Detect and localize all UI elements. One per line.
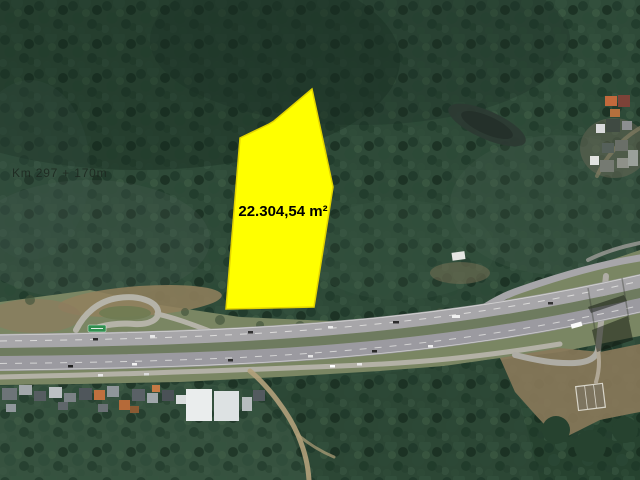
house-roof (130, 406, 139, 413)
building-roof (617, 158, 629, 168)
house-roof (2, 388, 17, 400)
house-roof (49, 387, 62, 398)
km-marker-label: Km 297 + 170m (12, 166, 107, 180)
vehicle (150, 335, 155, 338)
house-roof (34, 391, 46, 401)
house-roof (162, 390, 174, 401)
house-roof (119, 400, 130, 410)
house-roof (6, 404, 16, 412)
vehicle (132, 363, 137, 366)
building-roof (605, 96, 617, 106)
vehicle (548, 302, 553, 305)
vehicle (228, 359, 233, 362)
vehicle (68, 365, 73, 368)
house-roof (64, 393, 76, 402)
building-roof (600, 160, 614, 172)
vehicle (330, 365, 335, 368)
vehicle (144, 373, 149, 376)
vehicle (357, 363, 362, 366)
warehouse-roof (186, 389, 212, 421)
vehicle (248, 331, 253, 334)
vehicle (308, 355, 313, 358)
building-roof (596, 124, 605, 133)
vehicle (328, 326, 333, 329)
building-roof (610, 109, 620, 117)
building-roof (618, 95, 630, 107)
vehicle (428, 345, 433, 348)
house-roof (58, 402, 68, 410)
house-roof (132, 389, 145, 401)
house-roof (242, 397, 252, 411)
warehouse-roof (214, 391, 239, 421)
house-roof (79, 388, 92, 400)
satellite-map-canvas: 22.304,54 m² Km 297 + 170m (0, 0, 640, 480)
aerial-satellite-photo: 22.304,54 m² Km 297 + 170m (0, 0, 640, 480)
house-roof (253, 390, 265, 401)
vehicle (98, 374, 103, 377)
house-roof (107, 386, 119, 397)
vehicle-truck (452, 315, 460, 318)
house-roof (147, 393, 158, 403)
building-roof (602, 143, 614, 153)
highway-sign-green (88, 325, 106, 332)
vehicle (393, 321, 399, 324)
vehicle (93, 338, 98, 341)
house-roof (94, 390, 105, 400)
house-roof (176, 395, 186, 404)
building-roof (622, 121, 632, 130)
house-roof (152, 385, 160, 392)
fenced-enclosure (576, 383, 606, 410)
house-roof (98, 404, 108, 412)
vehicle (372, 350, 377, 353)
building-roof (615, 140, 628, 151)
building-roof (590, 156, 599, 165)
parcel-area-label: 22.304,54 m² (238, 203, 327, 220)
building-roof (628, 150, 638, 166)
house-roof (19, 385, 32, 395)
building-roof (606, 119, 620, 132)
